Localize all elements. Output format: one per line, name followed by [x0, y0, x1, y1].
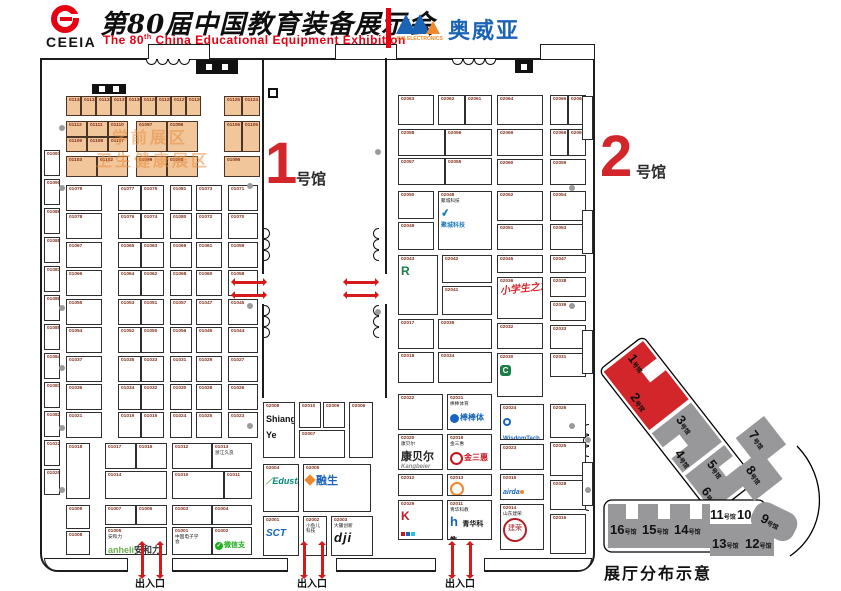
- booth-02009: 02009: [323, 402, 345, 428]
- booth-02028: 02028: [550, 480, 586, 510]
- booth-02061: 02061: [465, 95, 492, 125]
- entrance-label: 出入口: [288, 575, 336, 590]
- diagram-title: 展厅分布示意: [604, 560, 712, 584]
- booth-02058: 02058: [398, 129, 445, 156]
- booth-01053: 01053: [118, 299, 141, 325]
- entrance-arrow-icon: [234, 281, 264, 284]
- booth-01061: 01061: [196, 242, 222, 268]
- kangbeier-logo: 康贝尔Kangbeier: [401, 451, 441, 470]
- booth-01019: 01019: [118, 412, 141, 438]
- booth-01124: 01124: [242, 96, 260, 116]
- green-r-logo: R: [401, 264, 410, 278]
- booth-01017: 01017: [105, 443, 136, 469]
- booth-01084: 01084: [44, 353, 60, 379]
- booth-02004: 02004⟋Edustar: [263, 464, 299, 512]
- entrance-arrow-icon: [141, 544, 144, 576]
- booth-01021: 01021: [66, 412, 102, 438]
- door-arc-icon: [373, 327, 379, 338]
- booth-02041: 02041: [442, 286, 492, 315]
- booth-01083: 01083: [44, 382, 60, 408]
- booth-01075: 01075: [141, 185, 164, 211]
- escalator-icon: [515, 60, 533, 73]
- booth-02039: 02039: [550, 301, 586, 321]
- jucheng-bird-logo: ✔聚城科技: [441, 205, 490, 229]
- column-dot: [585, 487, 591, 493]
- booth-01054: 01054: [66, 327, 102, 353]
- zone-watermark-line1: 学前展区: [112, 124, 188, 148]
- booth-01046: 01046: [196, 327, 222, 353]
- bangbang-sports-logo: 棒棒体育: [450, 413, 484, 430]
- entrance-arrow-icon: [234, 294, 264, 297]
- column-dot: [59, 365, 65, 371]
- booth-01072: 01072: [196, 213, 222, 239]
- booth-01109: 01109: [66, 137, 87, 152]
- booth-01015: 01015: [141, 412, 164, 438]
- booth-01036: 01036: [66, 384, 102, 410]
- booth-01018: 01018: [66, 443, 90, 499]
- entrance-arrow-icon: [469, 544, 472, 576]
- airda-logo: airda: [503, 489, 524, 496]
- booth-01011: 01011: [224, 471, 252, 499]
- booth-02025: 02025: [550, 442, 586, 476]
- booth-02038: 02038: [550, 277, 586, 297]
- booth-02034: 02034: [438, 352, 492, 383]
- booth-01001: 01001中国电子学会: [172, 527, 212, 555]
- booth-02016: 02016: [550, 514, 586, 554]
- booth-01091: 01091: [44, 150, 60, 176]
- booth-01029: 01029: [196, 356, 222, 382]
- booth-02017: 02017: [398, 319, 434, 349]
- booth-01078: 01078: [66, 213, 102, 239]
- booth-01034: 01034: [118, 384, 141, 410]
- booth-01010: 01010: [172, 471, 224, 499]
- booth-01082: 01082: [44, 411, 60, 437]
- booth-01074: 01074: [141, 213, 164, 239]
- wisdomtech-logo: WisdomTech: [503, 420, 540, 440]
- ava-logo-icon: [396, 12, 444, 36]
- booth-02023: 02023: [500, 444, 544, 470]
- wechat-pay-logo: ✓微信支付: [215, 542, 245, 555]
- booth-01051: 01051: [141, 299, 164, 325]
- red-calligraphy-logo: 小学生之友: [500, 283, 542, 297]
- booth-01007: 01007: [105, 505, 136, 525]
- column-dot: [569, 185, 575, 191]
- booth-01024: 01024: [170, 412, 192, 438]
- booth-02054: 02054: [550, 191, 586, 221]
- booth: [582, 330, 593, 374]
- booth-02053: 02053: [550, 224, 586, 250]
- booth-01077: 01077: [118, 185, 141, 211]
- edustar-logo: ⟋Edustar: [266, 476, 299, 486]
- booth-01128: 01128: [156, 96, 171, 116]
- booth-02068: 02068: [550, 129, 568, 156]
- anheli-logo: anheli安和力: [108, 545, 161, 555]
- booth-01089: 01089: [44, 208, 60, 234]
- booth-02006: 02006: [349, 402, 373, 458]
- red-seal-logo: 建荣: [503, 518, 527, 542]
- booth-02019: 02019金三惠金三惠: [447, 434, 492, 470]
- booth-01064: 01064: [118, 270, 141, 296]
- booth-02007: 02007: [299, 430, 345, 458]
- column-dot: [59, 305, 65, 311]
- booth-01031: 01031: [170, 356, 192, 382]
- zone-watermark-line2: 卫生健康展区: [96, 147, 210, 171]
- booth-02005: 02005融生: [303, 464, 371, 512]
- booth-01134: 01134: [66, 96, 81, 116]
- exhibition-subtitle: The 80th China Educational Equipment Exh…: [103, 33, 406, 47]
- column-dot: [569, 423, 575, 429]
- booth-01062: 01062: [141, 270, 164, 296]
- entrance-gap: [288, 556, 336, 574]
- booth-02056: 02056: [445, 129, 492, 156]
- column-dot: [247, 423, 253, 429]
- booth-01070: 01070: [228, 213, 258, 239]
- booth-01088: 01088: [44, 237, 60, 263]
- booth-02063: 02063: [398, 95, 434, 125]
- booth-01027: 01027: [228, 356, 258, 382]
- booth-01132: 01132: [96, 96, 111, 116]
- booth-01032: 01032: [141, 384, 164, 410]
- booth-02066: 02066: [550, 95, 568, 125]
- booth-02033: 02033: [550, 325, 586, 349]
- sct-logo: SCT: [266, 528, 286, 539]
- booth-01004: 01004: [212, 505, 252, 525]
- booth-01020: 01020: [44, 469, 60, 495]
- booth-01111: 01111: [87, 121, 108, 137]
- hall2-number: 2: [600, 128, 632, 186]
- booth-01059: 01059: [228, 242, 258, 268]
- entrance-arrow-icon: [159, 544, 162, 576]
- door-arc-icon: [373, 250, 379, 261]
- escalator-icon: [92, 84, 126, 94]
- booth-01057: 01057: [170, 299, 192, 325]
- booth-02064: 02064: [497, 95, 543, 125]
- hall1-suffix: 号馆: [296, 168, 326, 189]
- entrance-arrow-icon: [321, 544, 324, 576]
- booth-01069: 01069: [170, 242, 192, 268]
- door-arc-icon: [373, 316, 379, 327]
- booth-02024: 02024WisdomTech: [500, 404, 544, 440]
- booth-02008: 02008Shiang Ye: [263, 402, 295, 458]
- booth: [582, 210, 593, 254]
- column-dot: [59, 125, 65, 131]
- booth-01056: 01056: [170, 327, 192, 353]
- booth-01131: 01131: [111, 96, 126, 116]
- booth-02059: 02059: [550, 159, 586, 185]
- booth-01133: 01133: [81, 96, 96, 116]
- booth-01002: 01002✓微信支付: [212, 527, 252, 555]
- booth-01022: 01022: [44, 440, 60, 466]
- booth-01028: 01028: [196, 384, 222, 410]
- booth-01003: 01003: [172, 505, 212, 525]
- booth-01103: 01103: [66, 156, 97, 177]
- column-dot: [247, 183, 253, 189]
- booth-01052: 01052: [118, 327, 141, 353]
- booth-02020: 02020康贝尔康贝尔Kangbeier: [398, 434, 443, 470]
- booth-01030: 01030: [170, 384, 192, 410]
- booth-01080: 01080: [170, 213, 192, 239]
- booth-01025: 01025: [196, 412, 222, 438]
- booth-02047: 02047: [550, 255, 586, 273]
- booth-01044: 01044: [228, 327, 258, 353]
- booth-01037: 01037: [66, 356, 102, 382]
- booth-01026: 01026: [228, 384, 258, 410]
- hall2-suffix: 号馆: [636, 161, 666, 182]
- booth-01050: 01050: [141, 327, 164, 353]
- booth-01055: 01055: [66, 299, 102, 325]
- header-divider: [386, 8, 391, 48]
- booth-01127: 01127: [171, 96, 186, 116]
- booth-02036: 02036小学生之友: [497, 277, 543, 319]
- entrance-arrow-icon: [303, 544, 306, 576]
- booth-01081: 01081: [170, 185, 192, 211]
- ava-name-label: 奥威亚: [448, 13, 520, 45]
- booth-02029: 02029K: [398, 500, 443, 540]
- booth-02001: 02001SCT: [263, 516, 299, 556]
- booth-01130: 01130: [126, 96, 141, 116]
- booth-02032: 02032: [497, 323, 543, 349]
- booth-02057: 02057: [398, 158, 445, 185]
- booth-01126: 01126: [186, 96, 201, 116]
- booth-01087: 01087: [44, 266, 60, 292]
- bottom-wall-segment: [336, 558, 436, 571]
- green-emblem-logo: C: [500, 365, 511, 376]
- booth-02003: 02003大疆创新dji: [331, 516, 373, 556]
- booth-02043: 02043R: [398, 255, 438, 315]
- booth-02018: 02018: [398, 352, 434, 383]
- entrance-canopy: [540, 44, 595, 60]
- booth-01006: 01006: [136, 505, 167, 525]
- booth-02055: 02055: [445, 158, 492, 185]
- booth-01016: 01016: [136, 443, 167, 469]
- booth-01067: 01067: [66, 242, 102, 268]
- booth-02045: 02045: [497, 255, 543, 273]
- booth-02013: 02013: [447, 474, 492, 496]
- booth: [582, 462, 593, 506]
- booth-01035: 01035: [118, 356, 141, 382]
- column-dot: [585, 437, 591, 443]
- jinsanhui-logo: 金三惠: [450, 453, 488, 462]
- hall-distribution-diagram: 1号馆2号馆3号馆4号馆5号馆6号馆10号馆11号馆12号馆13号馆14号馆15…: [596, 328, 841, 590]
- booth-01073: 01073: [196, 185, 222, 211]
- booth-01071: 01071: [228, 185, 258, 211]
- door-arc-icon: [373, 228, 379, 239]
- booth-01129: 01129: [141, 96, 156, 116]
- booth-02062: 02062: [438, 95, 465, 125]
- booth-01086: 01086: [44, 295, 60, 321]
- booth-01125: 01125: [224, 96, 242, 116]
- qinghua-h-logo: h 青华科教: [450, 513, 483, 540]
- booth-01079: 01079: [66, 185, 102, 211]
- ceeia-label: CEEIA: [46, 34, 96, 50]
- booth-01112: 01112: [66, 121, 87, 137]
- entrance-label: 出入口: [126, 575, 174, 590]
- booth-01085: 01085: [44, 324, 60, 350]
- booth-01065: 01065: [118, 242, 141, 268]
- booth-01047: 01047: [196, 299, 222, 325]
- column-dot: [375, 149, 381, 155]
- entrance-gap: [128, 556, 172, 574]
- escalator-icon: [268, 88, 278, 98]
- booth-01063: 01063: [141, 242, 164, 268]
- entrance-gap: [436, 556, 484, 574]
- corridor-wall-right: [385, 58, 387, 398]
- booth-02012: 02012: [398, 474, 443, 496]
- booth-02026: 02026: [550, 404, 586, 438]
- column-dot: [59, 185, 65, 191]
- booth-02069: 02069: [497, 129, 543, 156]
- ava-sub-label: AVA ELECTRONICS: [396, 36, 443, 42]
- hall1-number: 1: [265, 135, 297, 193]
- booth-01008: 01008: [66, 531, 90, 555]
- column-dot: [59, 487, 65, 493]
- entrance-arrow-icon: [451, 544, 454, 576]
- ceeia-logo-icon: [48, 4, 88, 34]
- bottom-wall-segment: [172, 558, 288, 571]
- column-dot: [247, 303, 253, 309]
- dji-logo: dji: [334, 530, 352, 545]
- shiangye-logo: Shiang Ye: [266, 414, 295, 440]
- booth-02030: 02030C: [497, 353, 543, 397]
- booth-02042: 02042: [442, 255, 492, 283]
- rongsheng-logo: 融生: [306, 475, 338, 487]
- booth-02052: 02052: [497, 191, 543, 221]
- column-dot: [375, 309, 381, 315]
- bottom-wall-segment: [484, 558, 592, 571]
- entrance-arrow-icon: [346, 281, 376, 284]
- booth-01076: 01076: [118, 213, 141, 239]
- booth-01014: 01014: [105, 471, 167, 499]
- booth-01060: 01060: [196, 270, 222, 296]
- booth-02060: 02060: [497, 159, 543, 185]
- bottom-wall-segment: [44, 558, 128, 571]
- booth-02014: 02014山东建荣建荣: [500, 504, 544, 550]
- booth-02049: 02049: [398, 222, 434, 250]
- orange-ring-logo: [450, 482, 464, 496]
- booth-01095: 01095: [224, 156, 260, 177]
- booth-02010: 02010: [299, 402, 321, 428]
- booth-02051: 02051: [497, 224, 543, 250]
- booth-01066: 01066: [66, 270, 102, 296]
- booth: [582, 96, 593, 140]
- booth-01012: 01012: [172, 443, 212, 469]
- booth-02048: 02048聚城科技✔聚城科技: [438, 191, 492, 250]
- escalator-icon: [196, 60, 238, 74]
- booth-02035: 02035: [438, 319, 492, 349]
- booth-02031: 02031: [550, 353, 586, 377]
- booth-01023: 01023: [228, 412, 258, 438]
- booth-02021: 02021棒棒体育棒棒体育: [447, 394, 492, 430]
- booth-01013: 01013浙江久良: [212, 443, 252, 469]
- booth-02050: 02050: [398, 191, 434, 219]
- booth-02022: 02022: [398, 394, 443, 430]
- entrance-arrow-icon: [346, 294, 376, 297]
- column-dot: [59, 425, 65, 431]
- booth-01105: 01105: [242, 121, 260, 152]
- booth-01068: 01068: [170, 270, 192, 296]
- booth-01106: 01106: [224, 121, 242, 152]
- entrance-label: 出入口: [436, 575, 484, 590]
- booth-01045: 01045: [228, 299, 258, 325]
- booth-01009: 01009: [66, 505, 90, 529]
- door-arc-icon: [373, 239, 379, 250]
- booth-01033: 01033: [141, 356, 164, 382]
- column-dot: [569, 303, 575, 309]
- booth-02011: 02011青华科教h 青华科教: [447, 500, 492, 540]
- booth-02015: 02015airda: [500, 474, 544, 500]
- booth-01090: 01090: [44, 179, 60, 205]
- k-logo: K: [401, 509, 416, 539]
